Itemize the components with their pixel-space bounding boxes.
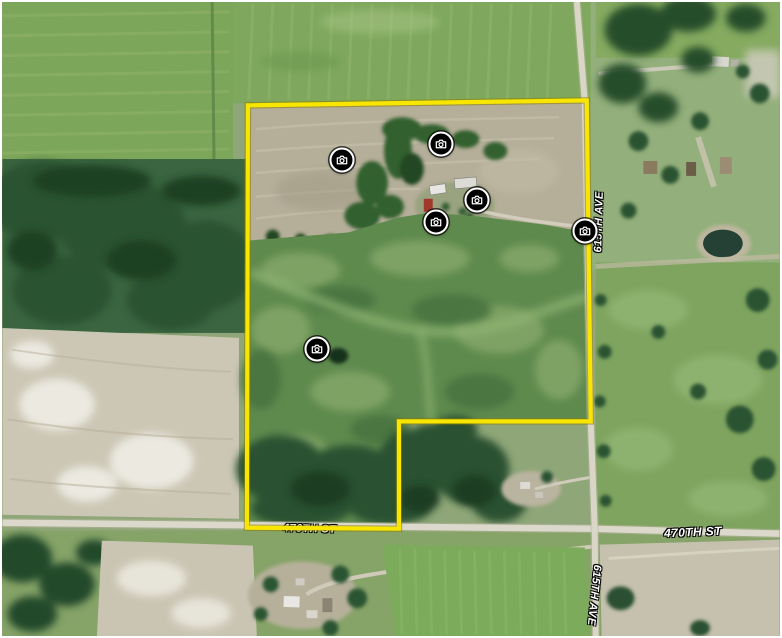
photo-markers-layer xyxy=(2,2,780,636)
photo-marker-photo-4[interactable] xyxy=(424,210,449,235)
aerial-map[interactable]: 470TH ST 470TH ST 615TH AVE 615TH AVE xyxy=(0,0,782,638)
camera-icon xyxy=(578,224,593,239)
camera-icon xyxy=(470,193,485,208)
photo-marker-photo-6[interactable] xyxy=(305,337,330,362)
camera-icon xyxy=(310,342,325,357)
camera-icon xyxy=(429,215,444,230)
photo-marker-photo-2[interactable] xyxy=(429,132,454,157)
camera-icon xyxy=(335,153,350,168)
camera-icon xyxy=(434,137,449,152)
photo-marker-photo-5[interactable] xyxy=(573,219,598,244)
photo-marker-photo-3[interactable] xyxy=(465,188,490,213)
photo-marker-photo-1[interactable] xyxy=(330,148,355,173)
